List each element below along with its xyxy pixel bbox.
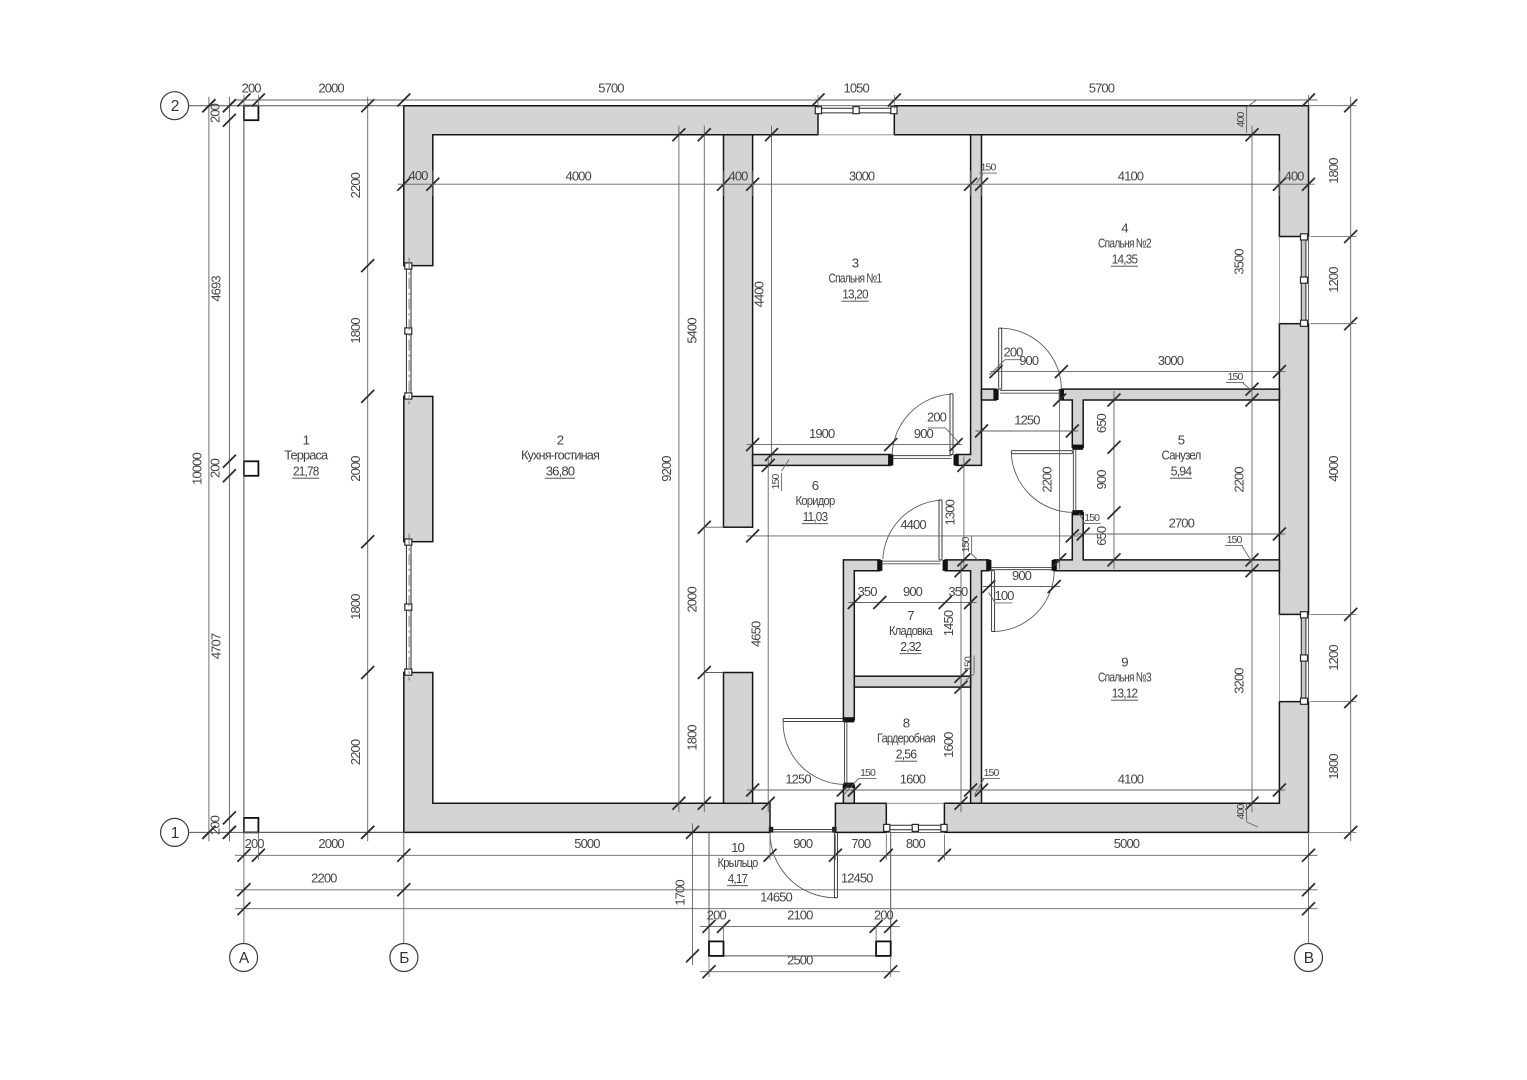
svg-text:800: 800: [906, 836, 926, 851]
svg-text:6: 6: [812, 478, 819, 493]
svg-text:200: 200: [245, 836, 265, 851]
svg-text:А: А: [239, 950, 250, 967]
svg-text:1800: 1800: [684, 725, 699, 751]
svg-text:14,35: 14,35: [1112, 252, 1138, 267]
svg-text:9200: 9200: [659, 456, 674, 482]
svg-text:900: 900: [1012, 568, 1032, 583]
svg-text:5700: 5700: [1089, 81, 1115, 96]
svg-text:1800: 1800: [348, 594, 363, 620]
svg-text:Кладовка: Кладовка: [889, 623, 933, 638]
svg-text:2200: 2200: [1232, 467, 1247, 493]
svg-text:150: 150: [1228, 371, 1244, 383]
svg-text:900: 900: [1094, 470, 1109, 490]
svg-text:1700: 1700: [673, 880, 688, 906]
svg-text:150: 150: [770, 474, 782, 490]
svg-text:36,80: 36,80: [546, 464, 575, 479]
svg-text:700: 700: [851, 836, 871, 851]
svg-text:150: 150: [963, 656, 975, 672]
svg-text:2000: 2000: [318, 836, 344, 851]
svg-text:4: 4: [1121, 221, 1128, 236]
svg-text:1250: 1250: [785, 772, 811, 787]
svg-text:350: 350: [948, 584, 968, 599]
svg-text:10: 10: [731, 840, 744, 855]
svg-text:2200: 2200: [348, 172, 363, 198]
svg-text:Б: Б: [399, 950, 409, 967]
svg-text:4100: 4100: [1118, 169, 1144, 184]
svg-text:200: 200: [874, 908, 894, 923]
svg-text:4,17: 4,17: [728, 871, 748, 886]
svg-text:5,94: 5,94: [1171, 464, 1192, 479]
svg-text:13,20: 13,20: [842, 287, 868, 302]
svg-text:12450: 12450: [841, 871, 873, 886]
svg-text:Гардеробная: Гардеробная: [877, 731, 936, 746]
svg-text:1900: 1900: [809, 426, 835, 441]
svg-text:5000: 5000: [1114, 836, 1140, 851]
svg-text:1800: 1800: [1326, 158, 1341, 184]
svg-text:Спальня №1: Спальня №1: [829, 271, 882, 286]
svg-text:1600: 1600: [900, 772, 926, 787]
svg-text:100: 100: [995, 588, 1015, 603]
svg-text:7: 7: [907, 608, 914, 623]
svg-text:1200: 1200: [1326, 267, 1341, 293]
svg-text:2100: 2100: [787, 908, 813, 923]
svg-text:400: 400: [409, 168, 429, 183]
svg-text:400: 400: [1235, 112, 1247, 128]
svg-text:Терраса: Терраса: [284, 448, 329, 463]
svg-text:1: 1: [171, 825, 179, 842]
svg-text:1050: 1050: [843, 81, 869, 96]
svg-text:21,78: 21,78: [293, 464, 319, 479]
svg-text:400: 400: [729, 168, 749, 183]
svg-text:400: 400: [1285, 168, 1305, 183]
svg-text:1: 1: [303, 433, 310, 448]
svg-text:2000: 2000: [318, 81, 344, 96]
svg-text:900: 900: [903, 584, 923, 599]
svg-text:1600: 1600: [941, 732, 956, 758]
svg-text:Спальня №3: Спальня №3: [1098, 670, 1151, 685]
svg-text:150: 150: [984, 767, 1000, 779]
svg-text:4400: 4400: [752, 281, 767, 307]
svg-text:4693: 4693: [209, 276, 224, 302]
svg-text:2200: 2200: [311, 871, 337, 886]
svg-text:5: 5: [1178, 433, 1185, 448]
svg-text:400: 400: [1235, 804, 1247, 820]
svg-text:150: 150: [960, 537, 972, 553]
svg-text:2000: 2000: [684, 587, 699, 613]
svg-text:650: 650: [1094, 413, 1109, 433]
svg-text:10000: 10000: [190, 453, 205, 485]
svg-text:9: 9: [1121, 655, 1128, 670]
svg-text:200: 200: [1004, 345, 1024, 360]
svg-text:14650: 14650: [760, 890, 792, 905]
svg-text:150: 150: [860, 767, 876, 779]
svg-text:Спальня №2: Спальня №2: [1098, 236, 1151, 251]
svg-text:Кухня-гостиная: Кухня-гостиная: [521, 448, 600, 463]
svg-text:4100: 4100: [1118, 772, 1144, 787]
svg-text:5400: 5400: [684, 318, 699, 344]
svg-text:1450: 1450: [941, 610, 956, 636]
svg-text:1800: 1800: [348, 318, 363, 344]
svg-text:13,12: 13,12: [1112, 686, 1138, 701]
svg-text:Санузел: Санузел: [1162, 448, 1201, 463]
svg-text:1300: 1300: [943, 499, 958, 525]
svg-text:2500: 2500: [787, 953, 813, 968]
svg-text:3000: 3000: [849, 169, 875, 184]
svg-text:200: 200: [707, 908, 727, 923]
svg-text:3500: 3500: [1232, 249, 1247, 275]
svg-text:4400: 4400: [900, 517, 926, 532]
svg-text:2200: 2200: [1040, 467, 1055, 493]
svg-text:4000: 4000: [565, 169, 591, 184]
svg-text:900: 900: [793, 836, 813, 851]
svg-text:2: 2: [557, 433, 564, 448]
svg-text:200: 200: [927, 410, 947, 425]
svg-text:150: 150: [981, 162, 997, 174]
svg-text:5000: 5000: [574, 836, 600, 851]
svg-text:2,56: 2,56: [896, 747, 917, 762]
svg-text:В: В: [1304, 950, 1314, 967]
svg-text:150: 150: [1084, 512, 1100, 524]
svg-text:2700: 2700: [1169, 516, 1195, 531]
svg-text:4707: 4707: [209, 633, 224, 659]
svg-text:5700: 5700: [598, 81, 624, 96]
svg-text:4650: 4650: [749, 621, 764, 647]
svg-text:3000: 3000: [1158, 353, 1184, 368]
svg-text:3: 3: [852, 256, 859, 271]
svg-text:3200: 3200: [1232, 668, 1247, 694]
svg-text:1800: 1800: [1326, 754, 1341, 780]
svg-text:200: 200: [242, 81, 262, 96]
svg-text:8: 8: [903, 716, 910, 731]
svg-text:150: 150: [1227, 534, 1243, 546]
svg-text:650: 650: [1094, 526, 1109, 546]
svg-text:200: 200: [208, 458, 223, 478]
svg-text:1200: 1200: [1326, 645, 1341, 671]
svg-text:350: 350: [858, 584, 878, 599]
svg-text:2,32: 2,32: [900, 639, 921, 654]
svg-text:Коридор: Коридор: [796, 493, 835, 508]
svg-text:2: 2: [171, 98, 179, 115]
svg-text:200: 200: [208, 103, 223, 123]
svg-text:200: 200: [208, 815, 223, 835]
svg-text:1250: 1250: [1014, 413, 1040, 428]
svg-text:11,03: 11,03: [803, 509, 828, 524]
svg-text:2000: 2000: [348, 456, 363, 482]
svg-text:Крыльцо: Крыльцо: [718, 855, 758, 870]
svg-text:2200: 2200: [348, 739, 363, 765]
svg-text:4000: 4000: [1326, 456, 1341, 482]
